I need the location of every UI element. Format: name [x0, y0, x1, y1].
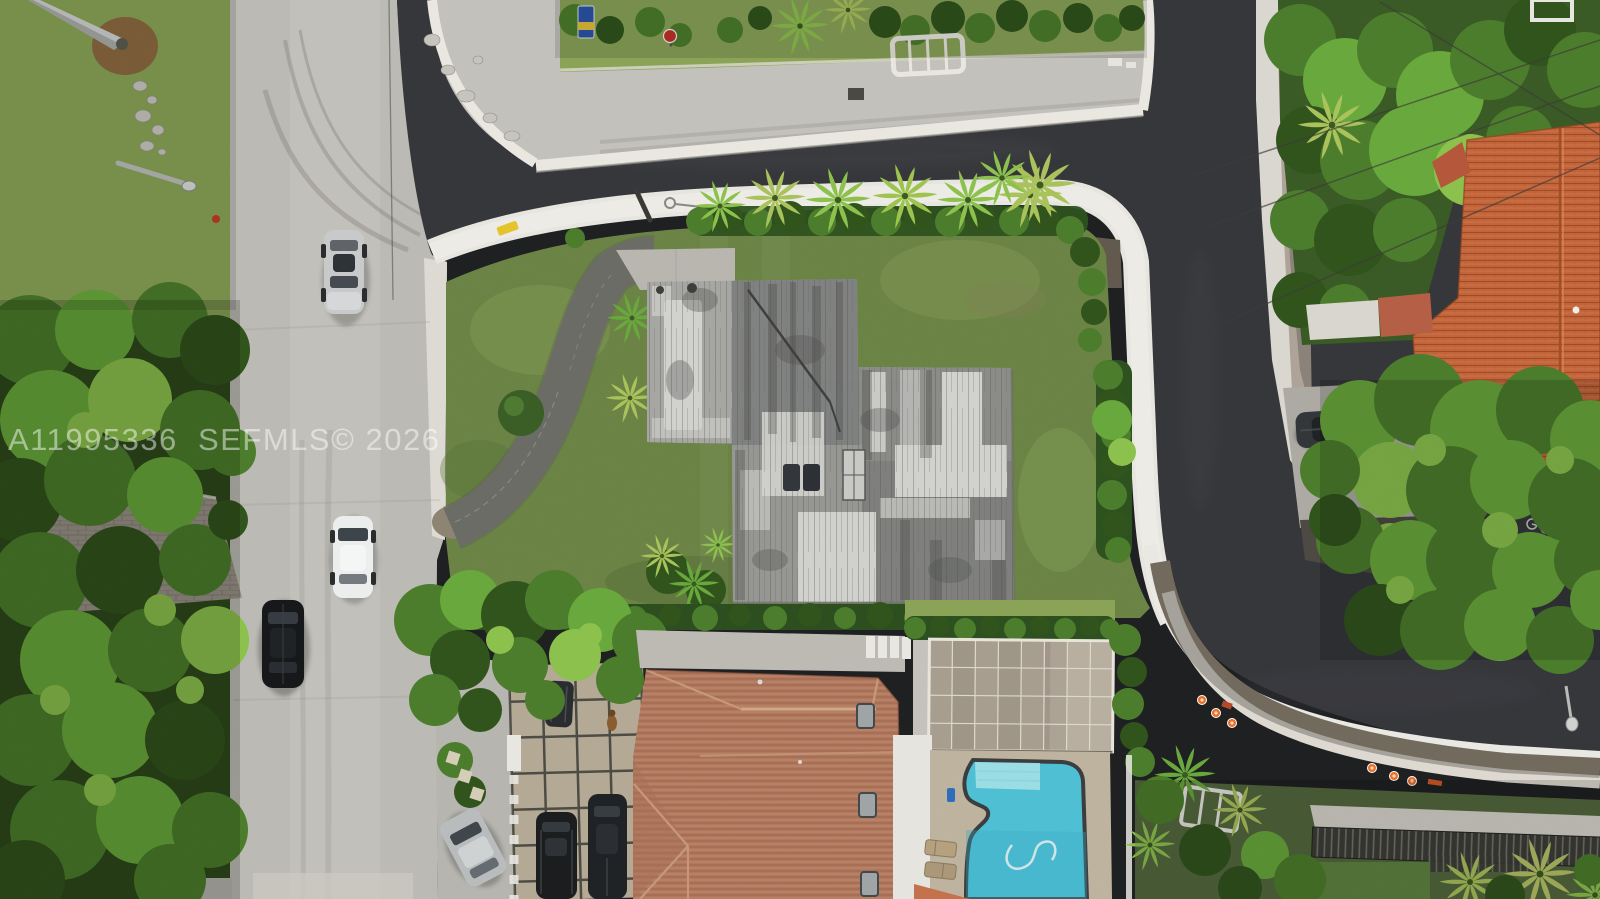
left-tree-canopy	[0, 0, 256, 899]
dock-box	[848, 88, 864, 100]
red-walk	[1378, 293, 1433, 337]
canal-overhang-trees	[1300, 354, 1600, 674]
car-white-driving	[330, 516, 378, 604]
white-gate	[507, 735, 521, 771]
roof-ac-unit	[783, 464, 800, 491]
pool-area	[893, 600, 1155, 899]
screened-pool-enclosure	[929, 639, 1114, 752]
white-fence-line	[1126, 755, 1132, 899]
pool-blue-item	[947, 788, 955, 802]
roof-ac-unit	[803, 464, 820, 491]
east-hedge	[1092, 360, 1136, 563]
aerial-photo: A11995336 SEFMLS© 2026	[0, 0, 1600, 899]
white-walk	[1306, 300, 1380, 340]
tile-roof-house	[633, 630, 911, 899]
car-black-suv-a	[536, 812, 577, 899]
aerial-photo-canvas	[0, 0, 1600, 899]
roof-frame-structure	[843, 450, 865, 500]
car-black-suv-b	[588, 794, 627, 899]
car-black-driving	[258, 600, 310, 696]
car-silver-driving	[321, 230, 370, 326]
